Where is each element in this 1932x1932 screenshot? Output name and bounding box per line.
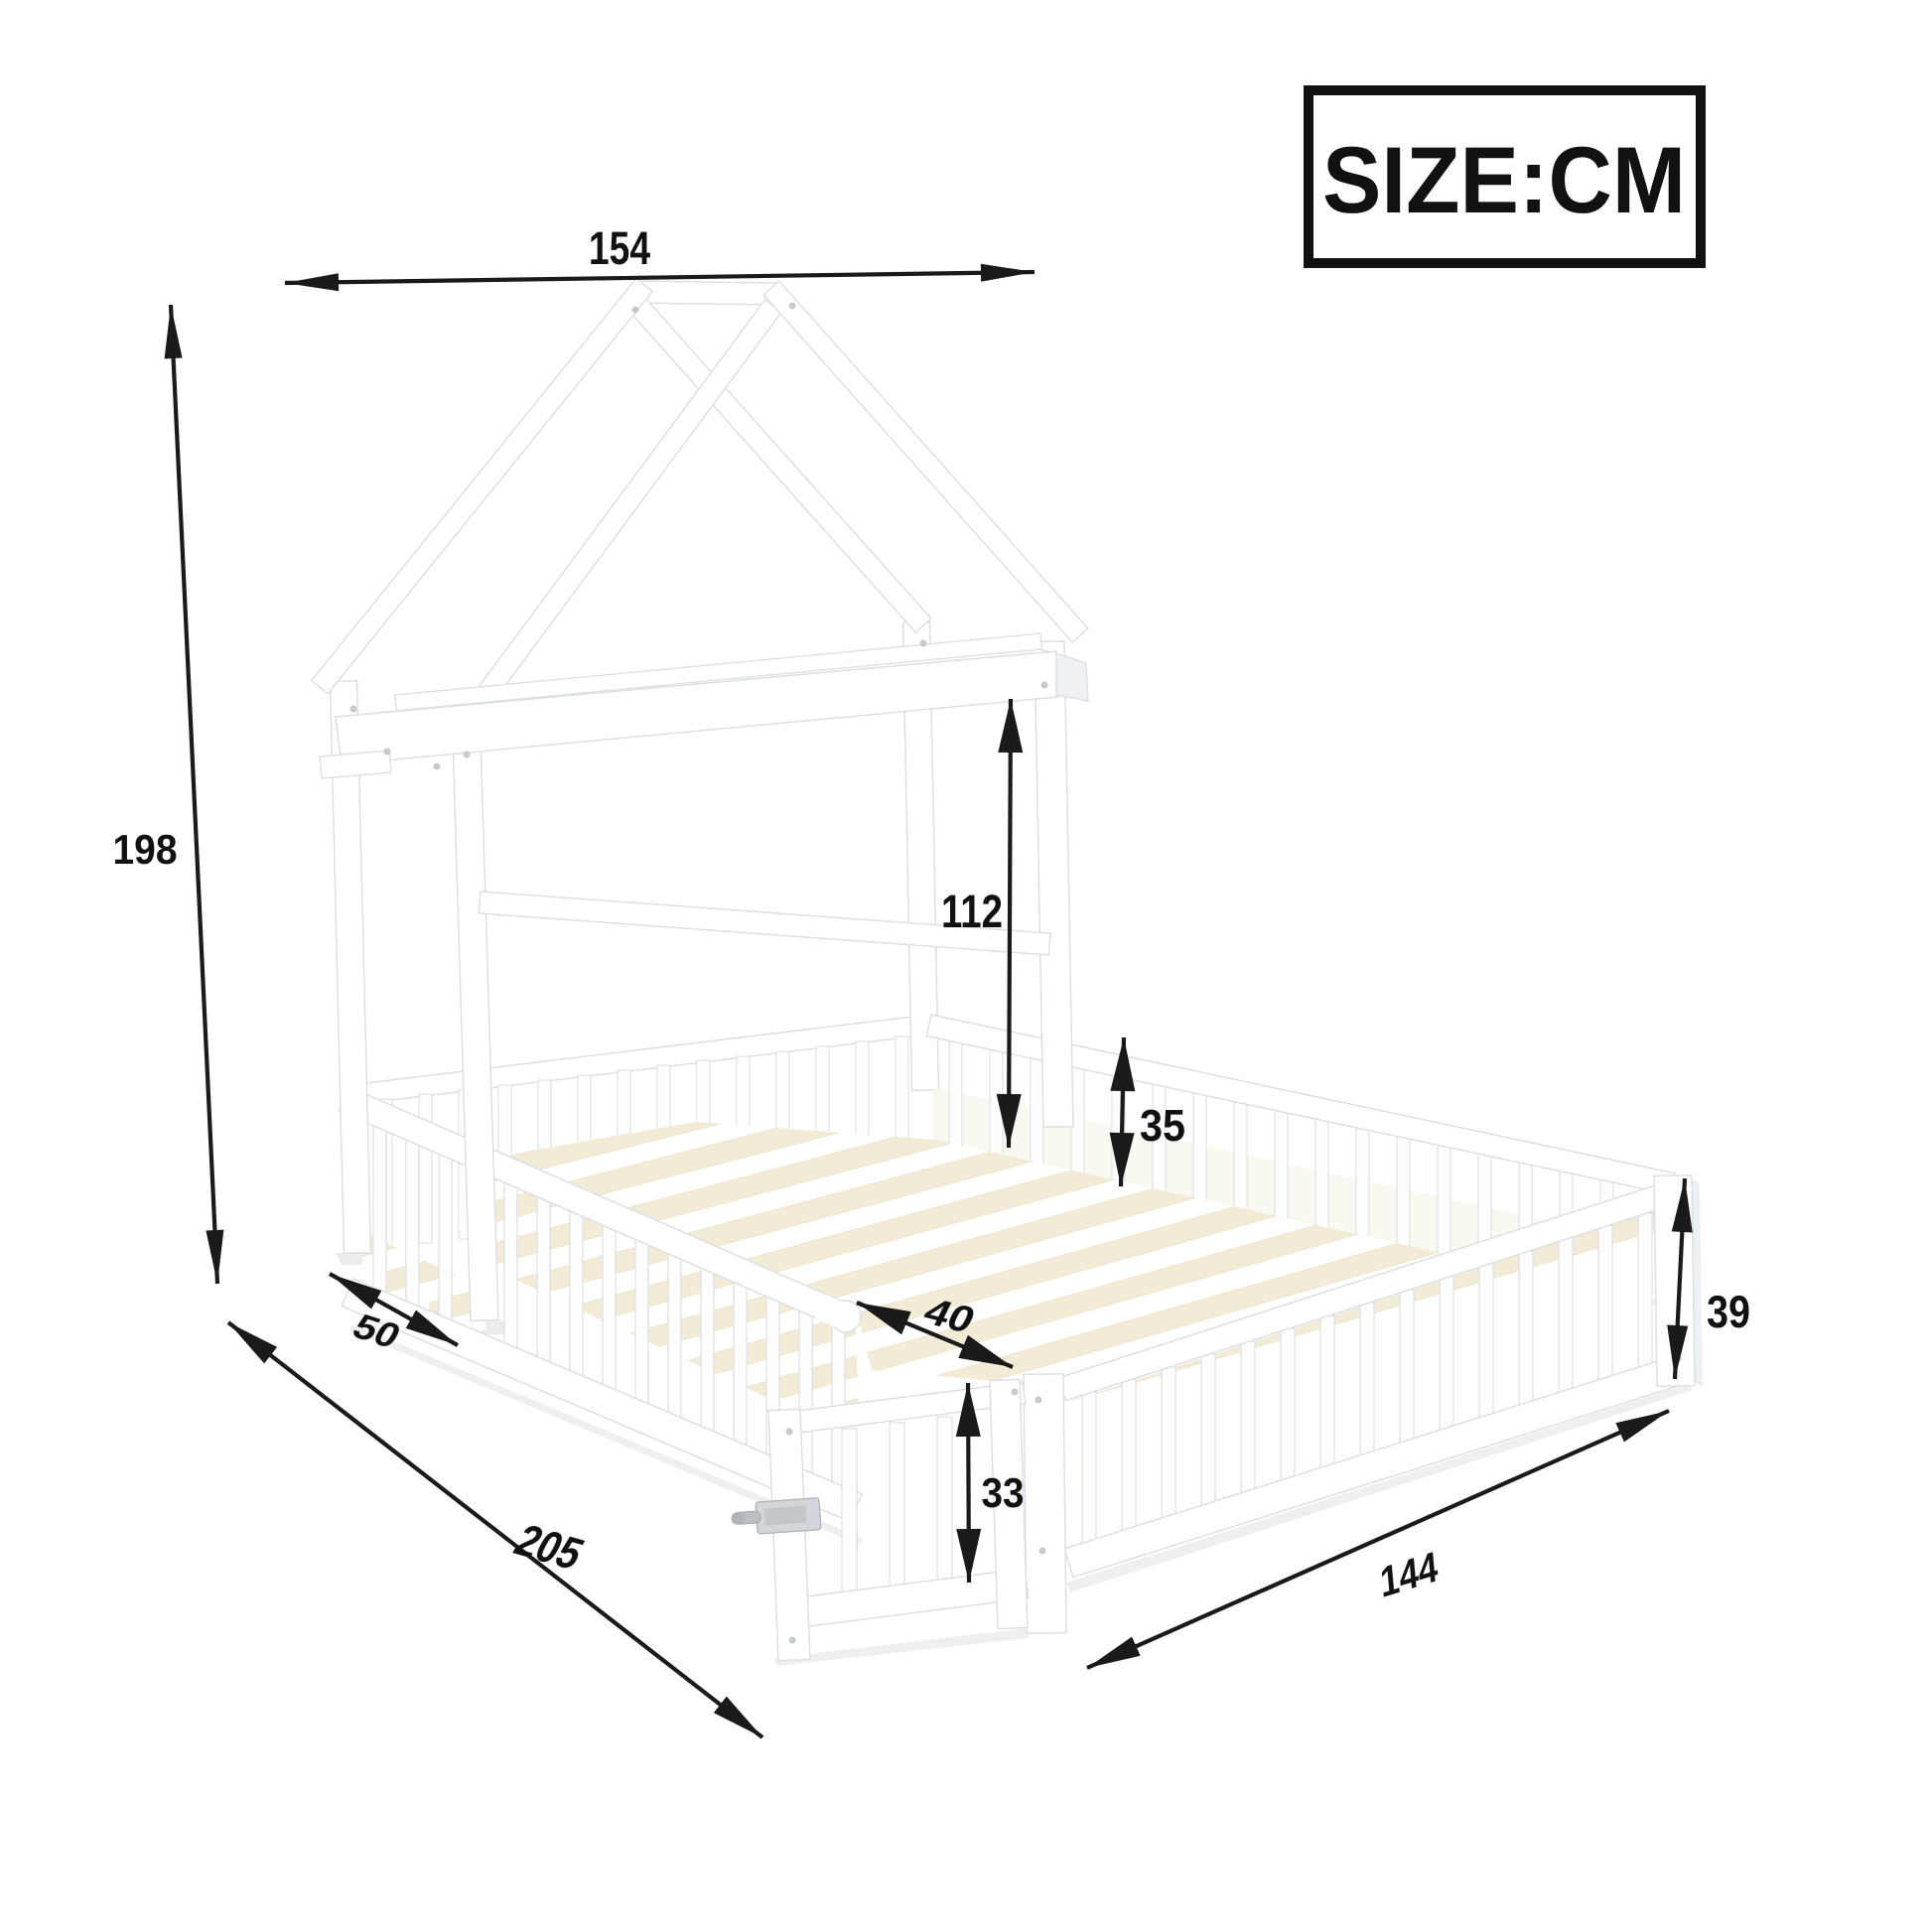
svg-text:33: 33 — [982, 1469, 1025, 1516]
svg-text:39: 39 — [1707, 1286, 1750, 1337]
svg-text:112: 112 — [941, 885, 1003, 937]
svg-text:35: 35 — [1140, 1100, 1185, 1151]
svg-text:SIZE:CM: SIZE:CM — [1322, 128, 1686, 233]
svg-text:198: 198 — [113, 826, 178, 873]
svg-text:154: 154 — [589, 221, 650, 274]
